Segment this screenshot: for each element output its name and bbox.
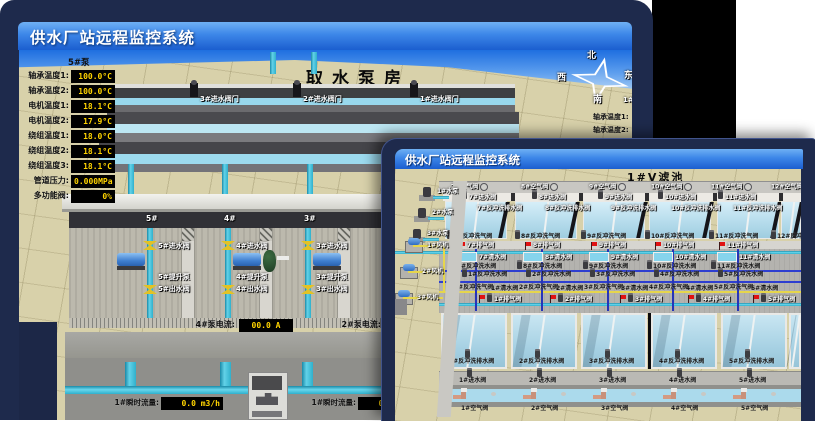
clear-water-valve-label[interactable]: 4#清水阀 <box>686 286 713 292</box>
panel-row-value: 18.1°C <box>71 160 115 173</box>
inlet-valve-icon[interactable] <box>658 192 663 199</box>
exhaust-valve-label[interactable]: 3#排气阀 <box>635 297 662 303</box>
air-valve-label[interactable]: 10#空气阀 <box>651 183 692 191</box>
air-valve-label[interactable]: 9#空气阀 <box>589 183 626 191</box>
blower-unit[interactable] <box>405 241 423 253</box>
air-valve-label[interactable]: 2#空气阀 <box>531 406 558 412</box>
valve-icon[interactable] <box>645 232 650 239</box>
compass-north: 北 <box>587 52 596 61</box>
panel-row-value: 100.0°C <box>71 70 115 83</box>
bay-wall-top <box>338 228 350 241</box>
air-elbow-pipe[interactable] <box>663 391 679 401</box>
clear-water-valve-label[interactable]: 9#清水阀 <box>611 255 638 261</box>
compass-east: 东 <box>624 72 632 81</box>
valve-icon[interactable] <box>696 295 701 302</box>
alarm-flag-icon <box>591 242 592 250</box>
clear-water-tank <box>589 252 609 262</box>
intake-gate-label[interactable]: 1#进水阀门 <box>420 96 459 103</box>
air-valve-icon <box>618 183 626 191</box>
air-valve-label[interactable]: 8#空气阀 <box>521 183 558 191</box>
valve-icon[interactable] <box>675 351 680 358</box>
blower-label[interactable]: 2#风机 <box>422 269 443 275</box>
front-window-title: 供水厂站远程监控系统 <box>405 152 520 168</box>
pump-current-display: 00.0 A <box>239 319 293 332</box>
panel-row-value: 18.1°C <box>71 145 115 158</box>
channel-dot <box>631 392 636 396</box>
backwash-water-valve-label[interactable]: 9#反冲洗水阀 <box>589 264 628 270</box>
riser-pipe <box>270 52 276 74</box>
worker-figure <box>263 250 276 272</box>
backwash-water-valve-label[interactable]: 5#反冲洗水阀 <box>724 272 763 278</box>
backwash-air-valve-label[interactable]: 8#反冲洗气阀 <box>521 234 560 240</box>
drain-valve-label[interactable]: 8#反冲洗排水阀 <box>545 206 590 212</box>
cell-divider <box>648 313 651 369</box>
drain-valve-label[interactable]: 5#反冲洗排水阀 <box>729 359 774 365</box>
valve-icon[interactable] <box>747 370 752 377</box>
backwash-water-valve-label[interactable]: 2#反冲洗水阀 <box>532 272 571 278</box>
inlet-valve-icon[interactable] <box>598 192 603 199</box>
panel-row-label: 轴承温度1: <box>24 72 69 82</box>
equipment <box>395 299 407 315</box>
pump-current-label: 2#泵电流: <box>315 321 381 329</box>
pump-pipe <box>428 217 444 220</box>
front-window: 供水厂站远程监控系统 1#V滤池 7#空气阀8#空气阀9#空气阀10#空气阀11… <box>381 138 815 421</box>
pump-panel-header: 5#泵 <box>68 56 90 68</box>
intake-gate-label[interactable]: 2#进水阀门 <box>303 96 342 103</box>
valve-icon[interactable] <box>515 232 520 239</box>
backwash-water-valve-label[interactable]: 1#反冲洗水阀 <box>468 272 507 278</box>
outlet-stub-pipe <box>302 362 313 388</box>
outlet-stub-pipe <box>125 362 136 388</box>
page: { "colors":{ "window_frame":"#1e2a4c","t… <box>0 0 815 420</box>
valve-icon[interactable] <box>647 262 652 269</box>
pump-pipe <box>423 238 439 241</box>
pump-current-label: 4#泵电流: <box>171 321 235 329</box>
panel-row-label: 绕组温度2: <box>24 147 69 157</box>
inlet-valve-label[interactable]: 1#进水阀 <box>459 378 486 384</box>
panel-row-label: 电机温度1: <box>24 102 69 112</box>
panel-row-label: 绕组温度1: <box>24 132 69 142</box>
exhaust-valve-label[interactable]: 8#排气阀 <box>533 243 560 249</box>
valve-icon[interactable] <box>526 270 531 277</box>
valve-icon[interactable] <box>745 351 750 358</box>
channel-dot <box>491 392 496 396</box>
right-panel-header: 1#泵 <box>623 97 632 104</box>
blower-label[interactable]: 1#风机 <box>427 243 448 249</box>
channel-dot <box>561 392 566 396</box>
bay-number: 4# <box>224 215 236 223</box>
intake-gate-label[interactable]: 3#进水阀门 <box>200 96 239 103</box>
panel-row-value: 0.000MPa <box>71 175 115 188</box>
backwash-air-valve-label[interactable]: 3#反冲洗气阀 <box>584 285 623 291</box>
bay-number: 5# <box>146 215 158 223</box>
inlet-valve-label[interactable]: 2#进水阀 <box>529 378 556 384</box>
valve-icon[interactable] <box>607 370 612 377</box>
cabinet-base <box>252 411 282 417</box>
clear-water-valve-label[interactable]: 7#清水阀 <box>479 255 506 261</box>
air-valve-label[interactable]: 11#空气阀 <box>711 183 752 191</box>
exhaust-valve-label[interactable]: 11#排气阀 <box>727 243 758 249</box>
clear-water-valve-label[interactable]: 8#清水阀 <box>545 255 572 261</box>
air-elbow-pipe[interactable] <box>523 391 539 401</box>
panel-row-value: 17.9°C <box>71 115 115 128</box>
valve-icon[interactable] <box>467 370 472 377</box>
frame-slot <box>579 193 583 201</box>
inlet-valve-label[interactable]: 3#进水阀 <box>599 378 626 384</box>
valve-icon[interactable] <box>711 262 716 269</box>
compass-west: 西 <box>557 74 566 83</box>
blower-label[interactable]: 3#风机 <box>417 295 438 301</box>
pump-label[interactable]: 4#提升泵 <box>236 274 268 281</box>
panel-row-value: 0% <box>71 190 115 203</box>
riser-pipe <box>311 52 317 74</box>
panel-row-value: 18.1°C <box>71 100 115 113</box>
clear-water-tank <box>653 252 673 262</box>
valve-icon[interactable] <box>517 262 522 269</box>
valve-icon[interactable] <box>771 232 776 239</box>
panel-row-label: 电机温度2: <box>24 117 69 127</box>
backwash-air-valve-label[interactable]: 10#反冲洗气阀 <box>651 234 694 240</box>
backwash-water-valve-label[interactable]: 11#反冲洗水阀 <box>717 264 760 270</box>
valve-icon[interactable] <box>677 370 682 377</box>
valve-label[interactable]: 4#出水阀 <box>236 286 268 293</box>
valve-icon[interactable] <box>581 232 586 239</box>
drain-valve-label[interactable]: 11#反冲洗排水阀 <box>733 206 782 212</box>
valve-icon[interactable] <box>709 232 714 239</box>
drain-valve-label[interactable]: 7#反冲洗排水阀 <box>477 206 522 212</box>
exhaust-valve-label[interactable]: 4#排气阀 <box>703 297 730 303</box>
valve-icon[interactable] <box>761 295 766 302</box>
alarm-flag-icon <box>525 242 526 250</box>
background-black-panel <box>652 0 736 145</box>
alarm-flag-icon <box>550 295 551 303</box>
backwash-air-valve-label[interactable]: 9#反冲洗气阀 <box>587 234 626 240</box>
channel-dot <box>771 392 776 396</box>
valve-label[interactable]: 3#出水阀 <box>316 286 348 293</box>
panel-row-value: 18.0°C <box>71 130 115 143</box>
back-window-titlebar: 供水厂站远程监控系统 <box>18 22 632 50</box>
intake-gate-valve-icon[interactable] <box>410 83 418 97</box>
bay-wall-top <box>260 228 272 241</box>
alarm-flag-icon <box>688 295 689 303</box>
exhaust-valve-label[interactable]: 1#排气阀 <box>494 297 521 303</box>
clear-water-valve-label[interactable]: 2#清水阀 <box>556 286 583 292</box>
backwash-air-valve-label[interactable]: 12#反冲洗气阀 <box>777 234 801 240</box>
clear-water-valve-label[interactable]: 1#清水阀 <box>491 286 518 292</box>
lift-pump[interactable] <box>313 253 341 266</box>
pump-label[interactable]: 5#提升泵 <box>158 274 190 281</box>
channel-dot <box>701 392 706 396</box>
flow-label: 1#瞬时流量: <box>99 399 159 407</box>
exhaust-valve-label[interactable]: 9#排气阀 <box>599 243 626 249</box>
blower-unit[interactable] <box>400 267 418 279</box>
valve-icon[interactable] <box>462 270 467 277</box>
valve-icon[interactable] <box>654 270 659 277</box>
cabinet-top <box>252 376 282 390</box>
filter-pool-scene: 1#V滤池 7#空气阀8#空气阀9#空气阀10#空气阀11#空气阀12#空气阀7… <box>395 169 801 421</box>
compass-south: 南 <box>593 96 602 105</box>
valve-icon[interactable] <box>537 370 542 377</box>
air-valve-label[interactable]: 5#空气阀 <box>741 406 768 412</box>
pump-pipe <box>433 196 449 199</box>
valve-icon[interactable] <box>487 295 492 302</box>
drain-valve-label[interactable]: 10#反冲洗排水阀 <box>671 206 720 212</box>
alarm-flag-icon <box>753 295 754 303</box>
valve-label[interactable]: 5#出水阀 <box>158 286 190 293</box>
frame-slot <box>645 193 649 201</box>
air-valve-label[interactable]: 1#空气阀 <box>461 406 488 412</box>
gallery-pipe-blue <box>439 281 801 283</box>
clear-water-valve-label[interactable]: 3#清水阀 <box>621 286 648 292</box>
panel-row-label: 轴承温度2: <box>24 87 69 97</box>
inlet-valve-icon[interactable] <box>718 192 723 199</box>
backwash-air-valve-label[interactable]: 11#反冲洗气阀 <box>715 234 758 240</box>
intake-channel <box>115 105 515 112</box>
panel-row-label: 管道压力: <box>24 177 69 187</box>
alarm-flag-icon <box>620 295 621 303</box>
air-valve-icon <box>550 183 558 191</box>
drain-valve-label[interactable]: 9#反冲洗排水阀 <box>611 206 656 212</box>
pump-base <box>117 266 145 270</box>
bay-number: 3# <box>304 215 316 223</box>
alarm-flag-icon <box>719 242 720 250</box>
valve-icon[interactable] <box>718 270 723 277</box>
intake-gate-valve-icon[interactable] <box>293 83 301 97</box>
clear-water-valve-label[interactable]: 10#清水阀 <box>675 255 706 261</box>
frame-slot <box>713 193 717 201</box>
outlet-stub-pipe <box>220 362 231 388</box>
backwash-water-valve-label[interactable]: 10#反冲洗水阀 <box>653 264 696 270</box>
alarm-flag-icon <box>655 242 656 250</box>
right-panel-label: 轴承温度1: <box>593 114 629 121</box>
exhaust-valve-label[interactable]: 5#排气阀 <box>768 297 795 303</box>
pump-base <box>313 266 341 270</box>
air-elbow-pipe[interactable] <box>453 391 469 401</box>
exhaust-valve-label[interactable]: 2#排气阀 <box>565 297 592 303</box>
valve-icon[interactable] <box>535 351 540 358</box>
pump-base <box>233 266 261 270</box>
valve-icon[interactable] <box>628 295 633 302</box>
intake-gate-valve-icon[interactable] <box>190 83 198 97</box>
drain-valve-label[interactable]: 4#反冲洗排水阀 <box>659 359 704 365</box>
clear-water-valve-label[interactable]: 5#清水阀 <box>751 286 778 292</box>
alarm-flag-icon <box>479 295 480 303</box>
pump-glyph <box>256 393 278 405</box>
inlet-valve-icon[interactable] <box>532 192 537 199</box>
inlet-valve-label[interactable]: 4#进水阀 <box>669 378 696 384</box>
air-valve-icon <box>684 183 692 191</box>
frame-slot <box>511 193 515 201</box>
pump-label[interactable]: 3#水泵 <box>427 231 448 237</box>
valve-label[interactable]: 4#进水阀 <box>236 243 268 250</box>
intake-channel <box>107 124 519 133</box>
panel-row-value: 100.0°C <box>71 85 115 98</box>
valve-icon[interactable] <box>465 351 470 358</box>
clear-water-valve-label[interactable]: 11#清水阀 <box>739 255 770 261</box>
white-pipe <box>277 256 289 260</box>
pump-cabinet-icon[interactable] <box>248 372 288 420</box>
valve-icon[interactable] <box>605 351 610 358</box>
exhaust-valve-label[interactable]: 7#排气阀 <box>467 243 494 249</box>
valve-icon[interactable] <box>558 295 563 302</box>
scene-corner <box>19 322 57 420</box>
drain-valve-label[interactable]: 3#反冲洗排水阀 <box>589 359 634 365</box>
valve-label[interactable]: 3#进水阀 <box>316 243 348 250</box>
panel-row-label: 多功能阀: <box>24 192 69 202</box>
valve-label[interactable]: 5#进水阀 <box>158 243 190 250</box>
clear-water-tank <box>717 252 737 262</box>
yellow-pipe <box>443 243 445 293</box>
air-valve-label[interactable]: 12#空气阀 <box>771 183 801 191</box>
right-panel-label: 轴承温度2: <box>593 127 629 134</box>
pump-label[interactable]: 3#提升泵 <box>316 274 348 281</box>
air-valve-label[interactable]: 4#空气阀 <box>671 406 698 412</box>
pump-label[interactable]: 2#水泵 <box>432 210 453 216</box>
drain-valve-label[interactable]: 1#反冲洗排水阀 <box>449 359 494 365</box>
backwash-air-valve-label[interactable]: 2#反冲洗气阀 <box>519 285 558 291</box>
frame-slot <box>779 193 783 201</box>
gallery-pipe-cyan <box>439 303 801 306</box>
backwash-air-valve-label[interactable]: 5#反冲洗气阀 <box>714 285 753 291</box>
valve-icon[interactable] <box>583 262 588 269</box>
air-valve-icon <box>744 183 752 191</box>
valve-icon[interactable] <box>590 270 595 277</box>
air-elbow-pipe[interactable] <box>593 391 609 401</box>
backwash-water-valve-label[interactable]: 4#反冲洗水阀 <box>660 272 699 278</box>
lift-pump[interactable] <box>117 253 145 266</box>
flow-label: 1#瞬时流量: <box>296 399 356 407</box>
flow-display: 0.0 m3/h <box>161 397 223 410</box>
exhaust-valve-label[interactable]: 10#排气阀 <box>663 243 694 249</box>
intake-channel <box>107 112 519 124</box>
backwash-water-valve-label[interactable]: 3#反冲洗水阀 <box>596 272 635 278</box>
air-valve-label[interactable]: 3#空气阀 <box>601 406 628 412</box>
air-valve-icon <box>480 183 488 191</box>
pump-label[interactable]: 1#水泵 <box>437 189 458 195</box>
air-elbow-pipe[interactable] <box>733 391 749 401</box>
clear-water-tank <box>523 252 543 262</box>
drain-valve-label[interactable]: 2#反冲洗排水阀 <box>519 359 564 365</box>
front-window-titlebar: 供水厂站远程监控系统 <box>395 149 803 169</box>
lift-pump[interactable] <box>233 253 261 266</box>
filter-cell <box>789 313 801 369</box>
backwash-air-valve-label[interactable]: 4#反冲洗气阀 <box>649 285 688 291</box>
bay-wall-top <box>182 228 194 241</box>
panel-row-label: 绕组温度3: <box>24 162 69 172</box>
inlet-valve-label[interactable]: 5#进水阀 <box>739 378 766 384</box>
back-window-title: 供水厂站远程监控系统 <box>30 26 195 48</box>
